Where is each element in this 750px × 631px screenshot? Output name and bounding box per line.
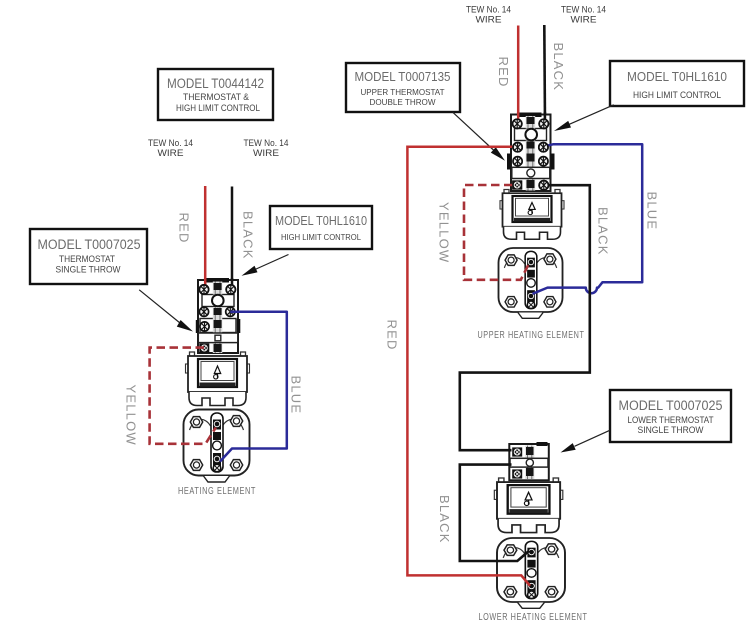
svg-text:YELLOW: YELLOW	[437, 202, 452, 263]
svg-text:HEATING ELEMENT: HEATING ELEMENT	[178, 486, 256, 497]
svg-text:MODEL T0044142: MODEL T0044142	[167, 76, 264, 91]
svg-text:TEW No. 14: TEW No. 14	[244, 138, 289, 148]
svg-text:BLUE: BLUE	[645, 192, 660, 231]
svg-text:BLACK: BLACK	[437, 495, 452, 544]
svg-text:UPPER HEATING ELEMENT: UPPER HEATING ELEMENT	[478, 330, 585, 341]
svg-text:HIGH LIMIT CONTROL: HIGH LIMIT CONTROL	[281, 232, 361, 242]
svg-text:MODEL T0007135: MODEL T0007135	[355, 70, 451, 84]
svg-text:THERMOSTAT &: THERMOSTAT &	[183, 92, 249, 102]
svg-text:HIGH LIMIT CONTROL: HIGH LIMIT CONTROL	[633, 90, 721, 100]
svg-text:MODEL T0HL1610: MODEL T0HL1610	[627, 69, 727, 84]
svg-text:RED: RED	[385, 320, 400, 351]
svg-text:BLACK: BLACK	[241, 211, 256, 260]
svg-text:SINGLE THROW: SINGLE THROW	[638, 425, 704, 435]
svg-text:BLACK: BLACK	[551, 43, 566, 92]
svg-text:WIRE: WIRE	[253, 148, 279, 158]
svg-text:WIRE: WIRE	[571, 15, 597, 25]
svg-text:LOWER THERMOSTAT: LOWER THERMOSTAT	[628, 415, 714, 425]
svg-text:TEW No. 14: TEW No. 14	[148, 138, 193, 148]
svg-text:HIGH LIMIT CONTROL: HIGH LIMIT CONTROL	[176, 103, 260, 113]
svg-text:UPPER THERMOSTAT: UPPER THERMOSTAT	[361, 87, 445, 97]
svg-text:MODEL T0007025: MODEL T0007025	[38, 237, 141, 252]
svg-text:YELLOW: YELLOW	[124, 385, 139, 446]
svg-text:MODEL T0HL1610: MODEL T0HL1610	[275, 214, 367, 228]
svg-text:LOWER HEATING ELEMENT: LOWER HEATING ELEMENT	[479, 612, 588, 623]
svg-text:TEW No. 14: TEW No. 14	[561, 5, 606, 15]
svg-text:THERMOSTAT: THERMOSTAT	[59, 254, 115, 264]
svg-text:BLUE: BLUE	[289, 376, 304, 415]
svg-text:BLACK: BLACK	[596, 207, 611, 256]
svg-text:TEW No. 14: TEW No. 14	[466, 5, 511, 15]
svg-text:RED: RED	[496, 57, 511, 88]
svg-text:WIRE: WIRE	[158, 148, 184, 158]
svg-text:DOUBLE THROW: DOUBLE THROW	[370, 97, 436, 107]
svg-text:MODEL T0007025: MODEL T0007025	[619, 398, 723, 413]
svg-text:RED: RED	[177, 213, 192, 244]
svg-text:WIRE: WIRE	[476, 15, 502, 25]
svg-text:SINGLE THROW: SINGLE THROW	[56, 265, 121, 275]
